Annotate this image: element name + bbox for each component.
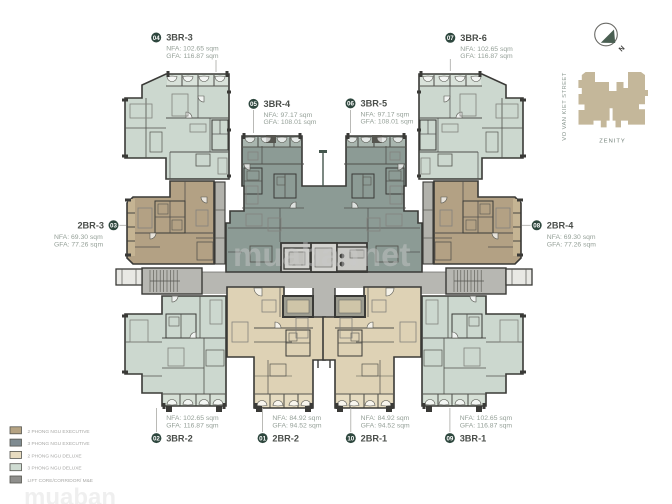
svg-text:08: 08: [533, 223, 540, 230]
svg-text:GFA: 116.87 sqm: GFA: 116.87 sqm: [460, 423, 513, 430]
svg-text:2BR-1: 2BR-1: [361, 434, 388, 444]
svg-text:net: net: [361, 236, 411, 273]
svg-text:3 PHONG NGU EXECUTIVE: 3 PHONG NGU EXECUTIVE: [28, 441, 90, 447]
svg-text:02: 02: [153, 435, 160, 442]
svg-text:2 PHONG NGU EXECUTIVE: 2 PHONG NGU EXECUTIVE: [28, 429, 90, 435]
svg-text:07: 07: [447, 35, 454, 42]
svg-text:NFA: 69.30 sqm: NFA: 69.30 sqm: [547, 234, 596, 241]
svg-text:3BR-2: 3BR-2: [166, 434, 193, 444]
svg-text:2BR-3: 2BR-3: [77, 221, 104, 231]
svg-text:3BR-3: 3BR-3: [166, 33, 193, 43]
svg-text:3BR-5: 3BR-5: [361, 99, 388, 109]
svg-text:NFA: 97.17 sqm: NFA: 97.17 sqm: [361, 111, 410, 118]
svg-text:GFA: 116.87 sqm: GFA: 116.87 sqm: [166, 423, 219, 430]
svg-text:LIFT CORE/CORRIDOR/ M&E: LIFT CORE/CORRIDOR/ M&E: [28, 478, 93, 484]
svg-text:GFA: 94.52 sqm: GFA: 94.52 sqm: [361, 423, 410, 430]
svg-text:NFA: 84.92 sqm: NFA: 84.92 sqm: [272, 415, 321, 422]
svg-text:09: 09: [446, 435, 453, 442]
svg-text:GFA: 77.26 sqm: GFA: 77.26 sqm: [54, 241, 103, 248]
svg-text:05: 05: [250, 101, 257, 108]
svg-text:GFA: 77.26 sqm: GFA: 77.26 sqm: [547, 241, 596, 248]
svg-text:VO VAN KIET STREET: VO VAN KIET STREET: [562, 72, 568, 140]
svg-text:3BR-4: 3BR-4: [264, 99, 291, 109]
svg-text:NFA: 97.17 sqm: NFA: 97.17 sqm: [264, 112, 313, 119]
svg-text:2BR-4: 2BR-4: [547, 221, 574, 231]
svg-text:NFA: 102.65 sqm: NFA: 102.65 sqm: [166, 46, 219, 53]
svg-text:NFA: 102.65 sqm: NFA: 102.65 sqm: [166, 415, 219, 422]
svg-text:GFA: 116.87 sqm: GFA: 116.87 sqm: [166, 53, 219, 60]
svg-text:3 PHONG NGU DELUXE: 3 PHONG NGU DELUXE: [28, 466, 82, 472]
svg-text:2 PHONG NGU DELUXE: 2 PHONG NGU DELUXE: [28, 453, 82, 459]
svg-text:NFA: 102.65 sqm: NFA: 102.65 sqm: [460, 46, 513, 53]
svg-text:2BR-2: 2BR-2: [272, 434, 299, 444]
svg-text:NFA: 84.92 sqm: NFA: 84.92 sqm: [361, 415, 410, 422]
svg-text:GFA: 94.52 sqm: GFA: 94.52 sqm: [272, 423, 321, 430]
svg-text:3BR-1: 3BR-1: [460, 434, 487, 444]
svg-text:06: 06: [347, 101, 354, 108]
svg-text:NFA: 69.30 sqm: NFA: 69.30 sqm: [54, 234, 103, 241]
svg-text:3BR-6: 3BR-6: [460, 33, 487, 43]
svg-text:GFA: 108.01 sqm: GFA: 108.01 sqm: [264, 119, 317, 126]
svg-text:04: 04: [153, 35, 160, 42]
svg-text:03: 03: [110, 223, 117, 230]
svg-text:muaban: muaban: [233, 236, 360, 273]
svg-text:NFA: 102.65 sqm: NFA: 102.65 sqm: [460, 415, 513, 422]
svg-text:muaban: muaban: [24, 484, 116, 504]
svg-text:GFA: 108.01 sqm: GFA: 108.01 sqm: [361, 119, 414, 126]
svg-text:GFA: 116.87 sqm: GFA: 116.87 sqm: [460, 53, 513, 60]
svg-text:01: 01: [259, 435, 266, 442]
svg-text:ZENITY: ZENITY: [599, 139, 626, 145]
svg-text:10: 10: [347, 435, 354, 442]
